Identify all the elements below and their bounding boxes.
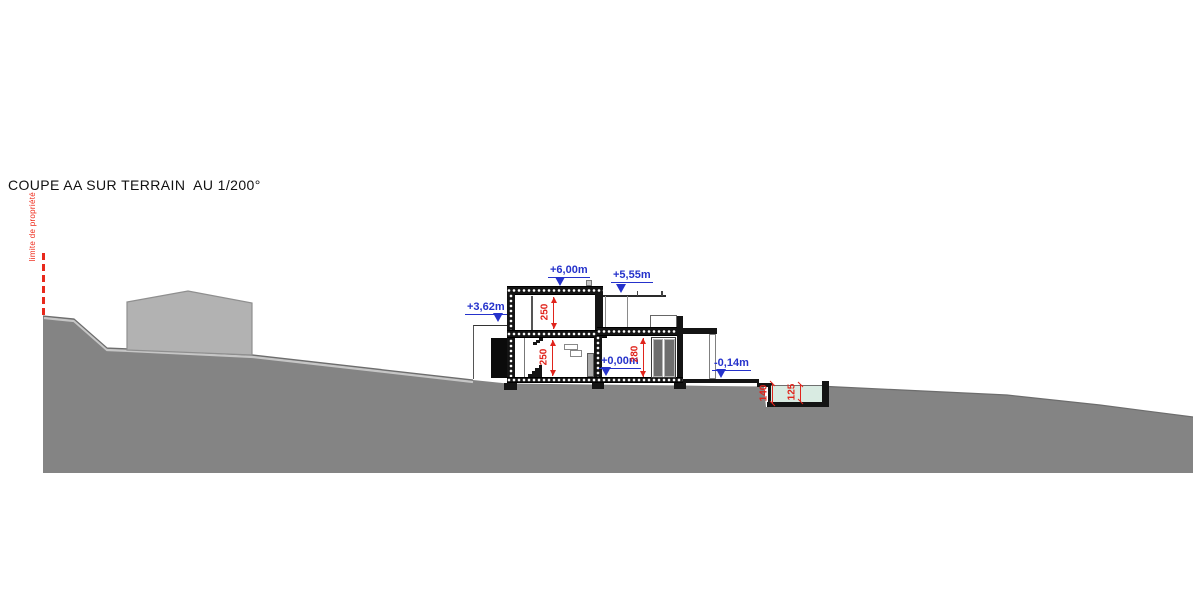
east-door-panel-left bbox=[653, 339, 664, 377]
level-arrow-plus-5-55 bbox=[616, 284, 626, 293]
east-exterior-wall bbox=[677, 316, 683, 383]
canopy-fixing-2 bbox=[661, 291, 663, 296]
dim-line-140 bbox=[772, 383, 773, 404]
level-arrow-minus-0-14 bbox=[716, 369, 726, 378]
stair-lower-step bbox=[539, 365, 543, 377]
dim-arrow bbox=[640, 338, 646, 344]
dim-arrow bbox=[640, 371, 646, 377]
level-arrow-zero bbox=[601, 367, 611, 376]
ground-partition bbox=[524, 338, 525, 377]
canopy-slab bbox=[603, 295, 666, 297]
dim-arrow bbox=[551, 297, 557, 303]
first-floor-slab bbox=[507, 330, 607, 338]
dim-label-280: 280 bbox=[630, 346, 641, 363]
pool-wall-right bbox=[822, 381, 829, 403]
foundation-west bbox=[504, 383, 517, 390]
roof-lantern bbox=[650, 315, 677, 327]
drawing-title: COUPE AA SUR TERRAIN AU 1/200° bbox=[8, 177, 261, 193]
east-door-panel-right bbox=[664, 339, 675, 377]
level-label-plus-5-55: +5,55m bbox=[611, 269, 653, 283]
roof-vent bbox=[586, 280, 592, 286]
foundation-middle bbox=[592, 383, 604, 389]
dim-label-upper-250: 250 bbox=[540, 304, 551, 321]
neighbor-building bbox=[127, 291, 252, 355]
canopy-post-2 bbox=[627, 296, 629, 327]
canopy-fixing-1 bbox=[637, 291, 639, 296]
west-exterior-wall bbox=[507, 294, 515, 383]
dim-label-ground-250: 250 bbox=[539, 349, 550, 366]
foundation-east bbox=[674, 383, 686, 389]
east-wing-roof-slab bbox=[597, 327, 683, 336]
level-arrow-plus-6-00 bbox=[555, 277, 565, 286]
upper-partition bbox=[531, 296, 533, 330]
canopy-post-1 bbox=[605, 296, 607, 327]
main-roof-slab bbox=[507, 286, 603, 295]
dim-arrow bbox=[550, 340, 556, 346]
property-limit-label: limite de propriété bbox=[28, 192, 37, 261]
terrace-floor bbox=[683, 379, 759, 384]
pool-floor bbox=[767, 402, 829, 407]
kitchen-unit-lower bbox=[570, 350, 582, 357]
level-arrow-plus-3-62 bbox=[493, 313, 503, 322]
dim-arrow bbox=[550, 370, 556, 376]
section-drawing-canvas: COUPE AA SUR TERRAIN AU 1/200° limite de… bbox=[0, 0, 1200, 589]
water-heater bbox=[587, 353, 594, 377]
level-label-plus-6-00: +6,00m bbox=[548, 264, 590, 278]
dim-label-140: 140 bbox=[759, 385, 770, 402]
entrance-door bbox=[491, 338, 507, 378]
dim-label-125: 125 bbox=[787, 384, 798, 401]
property-limit-line bbox=[42, 253, 45, 316]
stair-upper-step bbox=[533, 342, 537, 345]
dim-arrow bbox=[551, 323, 557, 329]
